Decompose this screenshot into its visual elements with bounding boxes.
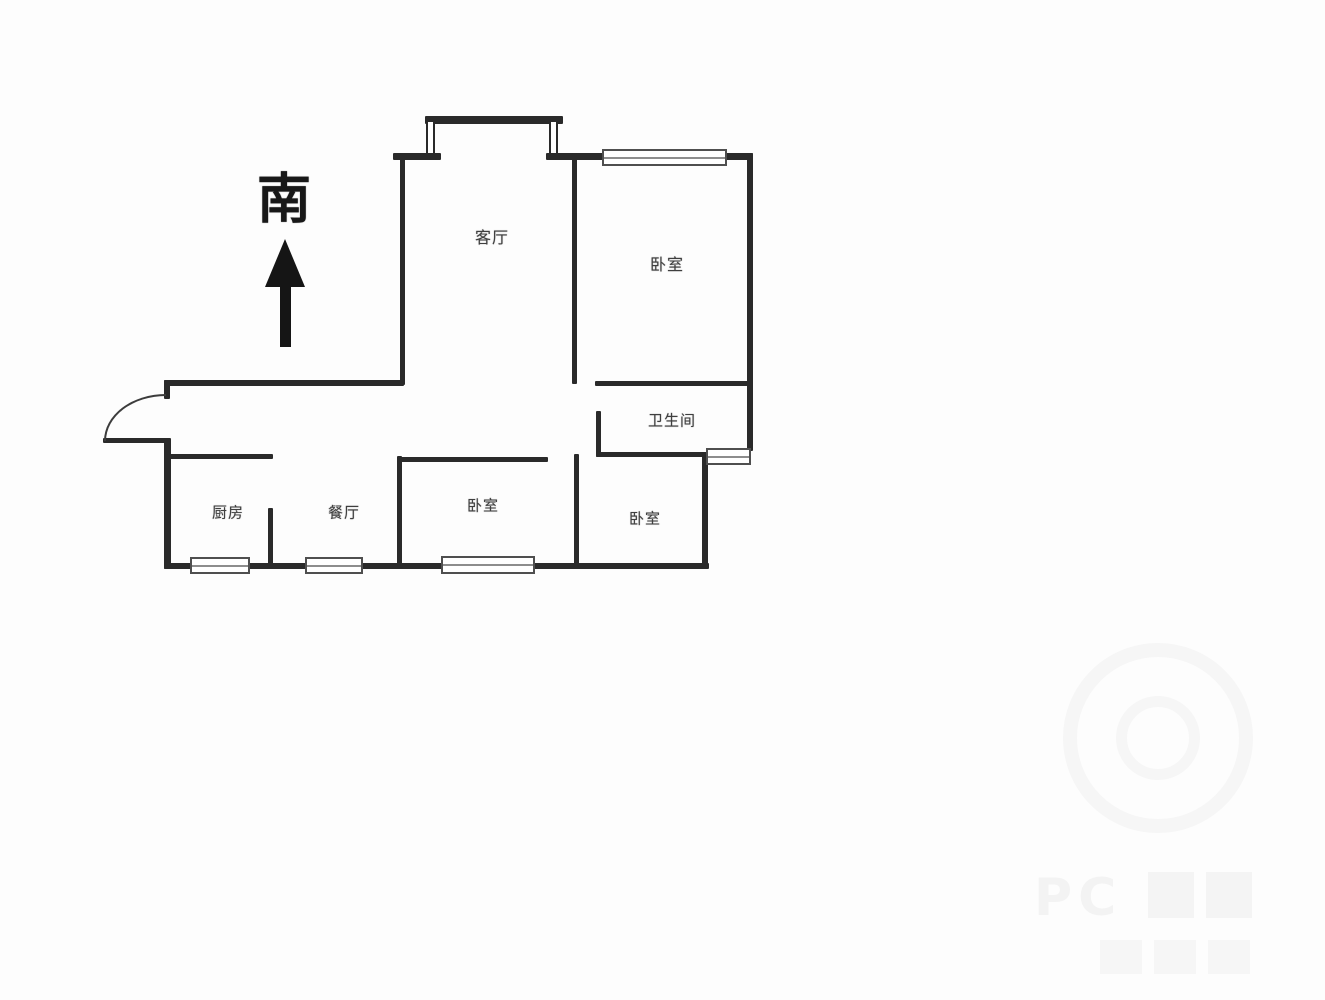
kitchen-dining-divider [268, 508, 273, 568]
bathroom-label: 卫生间 [648, 410, 696, 431]
livingroom-left-wall [400, 153, 405, 385]
dining-room-label: 餐厅 [328, 502, 360, 523]
floorplan-image: 客厅卧室卫生间厨房餐厅卧室卧室 南 PC [0, 0, 1325, 1000]
balcony-top-wall [425, 116, 563, 124]
bedroom-south-right-label: 卧室 [629, 508, 661, 529]
living-room-label: 客厅 [475, 224, 509, 248]
bathroom-window [706, 448, 751, 465]
bedroom-north-label: 卧室 [650, 251, 684, 275]
dining-window [305, 557, 363, 574]
bedroom-middle-window [441, 556, 535, 574]
kitchen-window [190, 557, 250, 574]
plan-canvas: 客厅卧室卫生间厨房餐厅卧室卧室 [0, 0, 1325, 1000]
livingroom-bedroom-divider [572, 153, 577, 384]
bathroom-left-wall [596, 411, 601, 457]
bedroom-south-middle-label: 卧室 [467, 495, 499, 516]
bathroom-bottom-wall [596, 452, 710, 457]
bedroom-north-window [602, 149, 727, 166]
bedroom-north-bottom-wall [595, 381, 748, 386]
kitchen-top-wall [167, 454, 273, 459]
hall-top-wall [164, 380, 404, 386]
bedroom-right-left-wall [574, 454, 579, 567]
bedroom-middle-left-wall [397, 456, 402, 568]
kitchen-label: 厨房 [212, 502, 244, 523]
compass-south-label: 南 [257, 155, 311, 234]
bedroom-right-right-wall [702, 452, 708, 567]
right-exterior-wall [747, 153, 753, 451]
compass-arrow-shaft [280, 283, 291, 347]
bedroom-middle-top-wall [397, 457, 548, 462]
compass-arrow-icon [265, 239, 305, 287]
